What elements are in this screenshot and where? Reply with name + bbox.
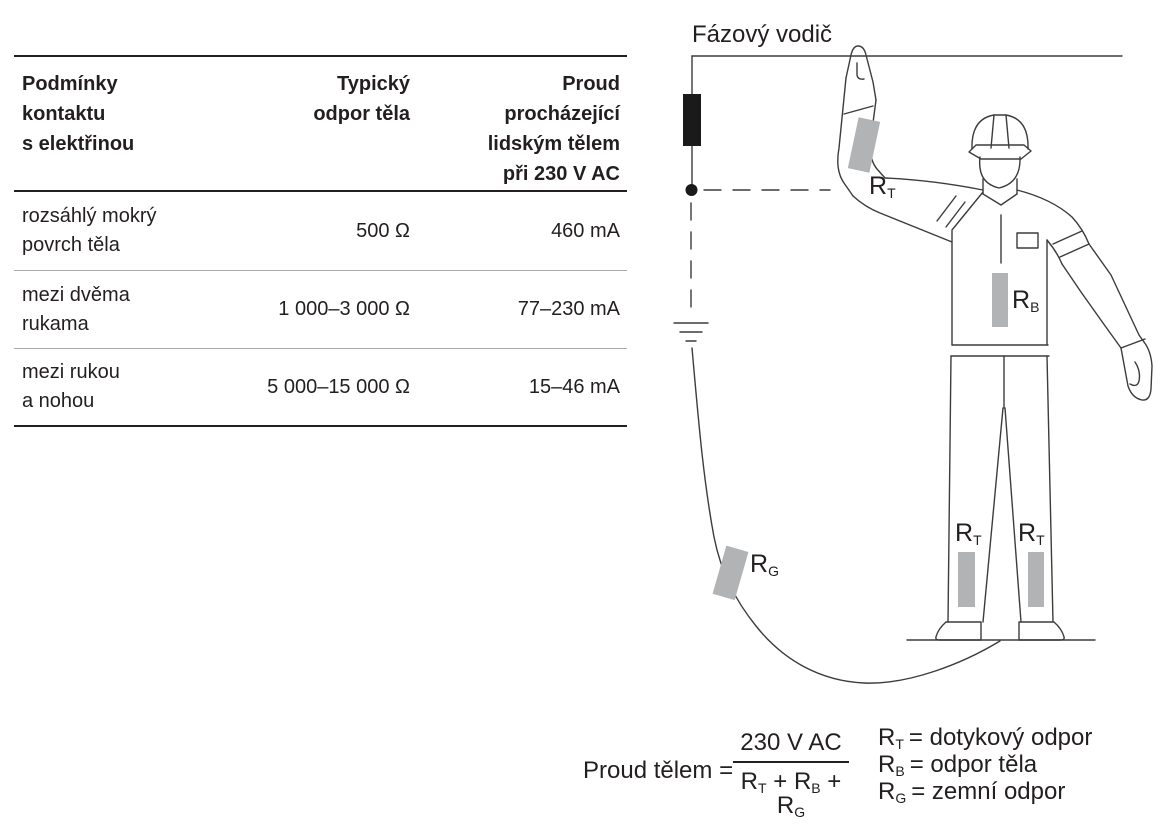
chest-pocket [1017,233,1038,248]
left-leg [948,356,1003,622]
body-resistance-patch [992,273,1008,327]
phase-conductor-label: Fázový vodič [692,21,832,50]
left-boot [936,622,981,640]
rt-arm-label: RT [869,174,896,199]
touch-resistance-patch-arm [848,117,880,172]
formula-lhs: Proud tělem = [583,759,733,783]
rg-ground-label: RG [750,552,779,577]
rt-right-leg-label: RT [1018,521,1045,546]
legend-item-rt: RT= dotykový odpor [878,724,1092,751]
earth-return-curve [692,348,1000,683]
rt-left-leg-label: RT [955,521,982,546]
earth-ground-symbol [674,323,708,341]
formula-denominator: RT + RB + RG [733,763,849,818]
waistband [951,345,1049,356]
hard-hat-brim [969,145,1031,159]
formula-numerator: 230 V AC [733,731,849,761]
raised-wrist-cuff [844,106,873,114]
resistance-legend: RT= dotykový odpor RB= odpor těla RG= ze… [878,724,1092,805]
hanging-arm-band [1053,231,1089,257]
right-boot [1019,622,1064,640]
raised-hand-outline [846,46,876,100]
glove-outline [1121,342,1152,400]
electric-shock-diagram [0,0,1163,826]
right-shoulder [1017,190,1089,244]
touch-resistance-patch-right-leg [1028,552,1044,607]
rb-body-label: RB [1012,288,1039,313]
load-resistor-symbol [683,94,701,146]
raised-hand-finger [857,63,864,79]
face-outline [980,157,1020,188]
formula-fraction: 230 V AC RT + RB + RG [733,731,849,818]
touch-resistance-patch-left-leg [958,552,975,607]
node-dot [686,184,698,196]
hanging-arm-outer [1089,244,1144,342]
hard-hat-ridge [991,115,1009,148]
hard-hat-dome [972,115,1028,149]
legend-item-rg: RG= zemní odpor [878,778,1092,805]
glove-thumb [1130,362,1140,385]
collar-v [983,194,1017,205]
glove-cuff [1121,339,1145,348]
legend-item-rb: RB= odpor těla [878,751,1092,778]
shoulder-seam [952,192,983,230]
raised-arm-band [937,196,965,227]
